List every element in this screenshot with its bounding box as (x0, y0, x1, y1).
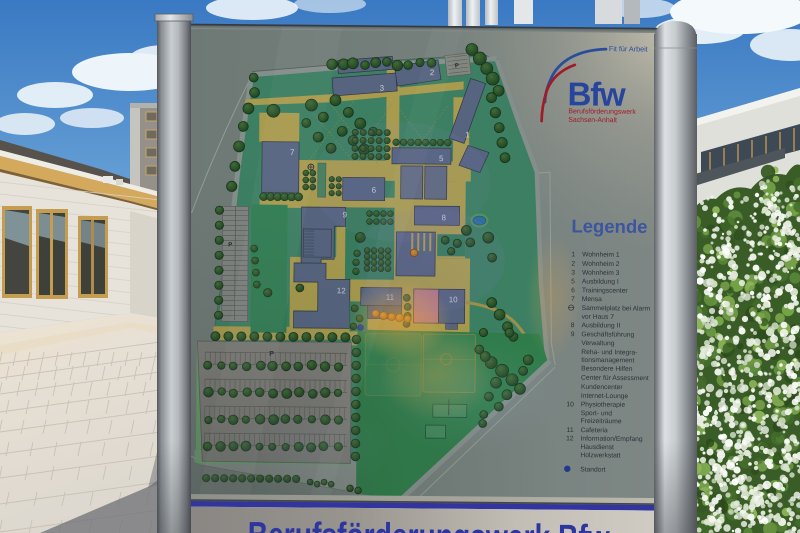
svg-text:Freizeiträume: Freizeiträume (581, 418, 622, 425)
svg-text:6: 6 (571, 287, 575, 294)
svg-text:Physiotherapie: Physiotherapie (581, 401, 626, 408)
svg-text:Information/Empfang: Information/Empfang (581, 436, 643, 444)
svg-text:Center für Assessment: Center für Assessment (581, 375, 649, 383)
svg-text:Wohnheim 1: Wohnheim 1 (582, 251, 620, 258)
svg-text:2: 2 (571, 261, 575, 268)
svg-text:vor Haus 7: vor Haus 7 (582, 314, 615, 321)
svg-text:Internet-Lounge: Internet-Lounge (581, 393, 629, 400)
svg-text:9: 9 (571, 331, 575, 338)
svg-text:Legende: Legende (571, 215, 647, 237)
svg-text:Standort: Standort (580, 466, 605, 473)
svg-text:Sport- und: Sport- und (581, 410, 613, 417)
svg-text:Besondere Hilfen: Besondere Hilfen (581, 365, 633, 372)
svg-text:3: 3 (571, 270, 575, 277)
svg-text:1: 1 (571, 251, 575, 258)
svg-text:Trainingscenter: Trainingscenter (582, 287, 629, 294)
svg-text:11: 11 (567, 427, 574, 434)
svg-text:Sachsen-Anhalt: Sachsen-Anhalt (568, 117, 617, 124)
svg-text:Mensa: Mensa (582, 296, 602, 303)
svg-text:Reha- und Integra-: Reha- und Integra- (581, 349, 637, 356)
svg-text:Cafeteria: Cafeteria (581, 427, 608, 434)
svg-text:5: 5 (571, 278, 575, 285)
svg-text:Ausbildung I: Ausbildung I (582, 278, 619, 285)
svg-text:Wohnheim 3: Wohnheim 3 (582, 270, 620, 277)
svg-text:Berufsförderungswerk: Berufsförderungswerk (568, 108, 636, 116)
svg-text:10: 10 (566, 401, 574, 408)
svg-text:tionsmanagement: tionsmanagement (581, 357, 634, 364)
svg-text:Ausbildung II: Ausbildung II (581, 322, 620, 329)
svg-text:Fit für Arbeit: Fit für Arbeit (609, 44, 648, 53)
svg-text:Verwaltung: Verwaltung (581, 340, 614, 347)
svg-text:Sammelplatz bei Alarm: Sammelplatz bei Alarm (582, 305, 651, 313)
svg-text:Kundencenter: Kundencenter (581, 384, 623, 391)
svg-text:Geschäftsführung: Geschäftsführung (581, 331, 634, 338)
svg-text:Holzwerkstatt: Holzwerkstatt (580, 452, 620, 459)
svg-text:12: 12 (566, 435, 574, 442)
svg-text:Bfw: Bfw (567, 75, 626, 113)
svg-text:8: 8 (571, 322, 575, 329)
svg-text:7: 7 (571, 296, 575, 303)
svg-text:Hausdienst: Hausdienst (580, 444, 614, 451)
svg-text:Wohnheim 2: Wohnheim 2 (582, 261, 620, 268)
svg-text:Berufsförderungswerk Bfw: Berufsförderungswerk Bfw (248, 515, 611, 533)
